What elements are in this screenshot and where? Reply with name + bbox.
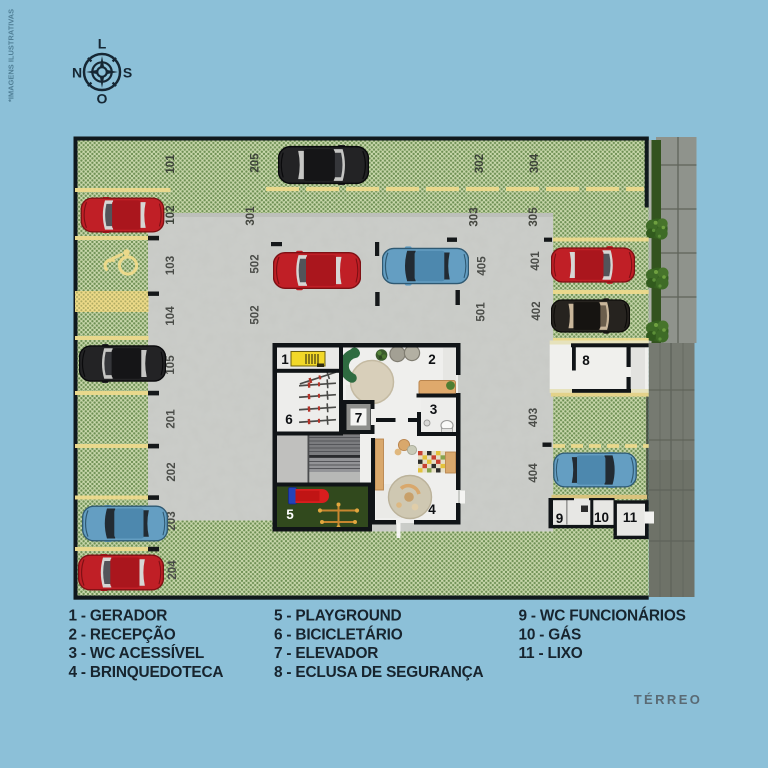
svg-text:3 - WC ACESSÍVEL: 3 - WC ACESSÍVEL	[69, 645, 205, 662]
svg-text:403: 403	[528, 408, 540, 427]
svg-text:302: 302	[474, 154, 486, 173]
svg-text:6 - BICICLETÁRIO: 6 - BICICLETÁRIO	[274, 626, 403, 643]
svg-text:TÉRREO: TÉRREO	[634, 692, 703, 707]
svg-text:10 - GÁS: 10 - GÁS	[519, 626, 582, 643]
svg-text:103: 103	[165, 256, 177, 275]
svg-text:8: 8	[582, 353, 590, 368]
svg-text:201: 201	[166, 409, 178, 429]
svg-text:401: 401	[530, 251, 542, 271]
svg-text:11: 11	[623, 510, 638, 525]
svg-text:202: 202	[166, 462, 178, 481]
svg-text:O: O	[97, 91, 108, 107]
svg-text:502: 502	[250, 254, 262, 273]
svg-text:101: 101	[165, 154, 177, 174]
svg-text:502: 502	[250, 305, 262, 324]
svg-text:8 - ECLUSA DE SEGURANÇA: 8 - ECLUSA DE SEGURANÇA	[274, 664, 484, 681]
svg-text:402: 402	[531, 301, 543, 320]
svg-text:*IMAGENS ILUSTRATIVAS: *IMAGENS ILUSTRATIVAS	[7, 9, 16, 102]
svg-text:204: 204	[167, 560, 179, 580]
svg-text:6: 6	[285, 412, 293, 427]
svg-text:301: 301	[245, 206, 257, 226]
svg-text:404: 404	[528, 463, 540, 483]
svg-text:205: 205	[250, 153, 262, 173]
svg-text:102: 102	[165, 205, 177, 224]
svg-text:5 - PLAYGROUND: 5 - PLAYGROUND	[274, 608, 402, 625]
svg-text:11 - LIXO: 11 - LIXO	[519, 645, 583, 662]
svg-text:L: L	[98, 36, 107, 52]
svg-text:S: S	[123, 65, 132, 81]
svg-text:10: 10	[594, 510, 609, 525]
svg-text:305: 305	[528, 207, 540, 227]
svg-text:104: 104	[165, 306, 177, 326]
svg-text:7 - ELEVADOR: 7 - ELEVADOR	[274, 645, 378, 662]
svg-text:501: 501	[476, 302, 488, 322]
svg-text:9 - WC FUNCIONÁRIOS: 9 - WC FUNCIONÁRIOS	[519, 608, 686, 625]
svg-text:2: 2	[428, 352, 436, 367]
svg-text:405: 405	[477, 256, 489, 276]
svg-text:1: 1	[281, 352, 289, 367]
svg-text:9: 9	[556, 511, 564, 526]
svg-text:1 - GERADOR: 1 - GERADOR	[69, 608, 168, 625]
svg-text:105: 105	[165, 355, 177, 375]
svg-text:3: 3	[430, 402, 438, 417]
svg-text:304: 304	[529, 153, 541, 173]
svg-text:303: 303	[469, 207, 481, 226]
svg-text:4 - BRINQUEDOTECA: 4 - BRINQUEDOTECA	[69, 664, 224, 681]
svg-text:4: 4	[428, 502, 436, 517]
svg-text:5: 5	[286, 507, 294, 522]
svg-text:7: 7	[355, 411, 363, 426]
svg-text:N: N	[72, 65, 82, 81]
svg-text:2 - RECEPÇÃO: 2 - RECEPÇÃO	[69, 625, 176, 643]
